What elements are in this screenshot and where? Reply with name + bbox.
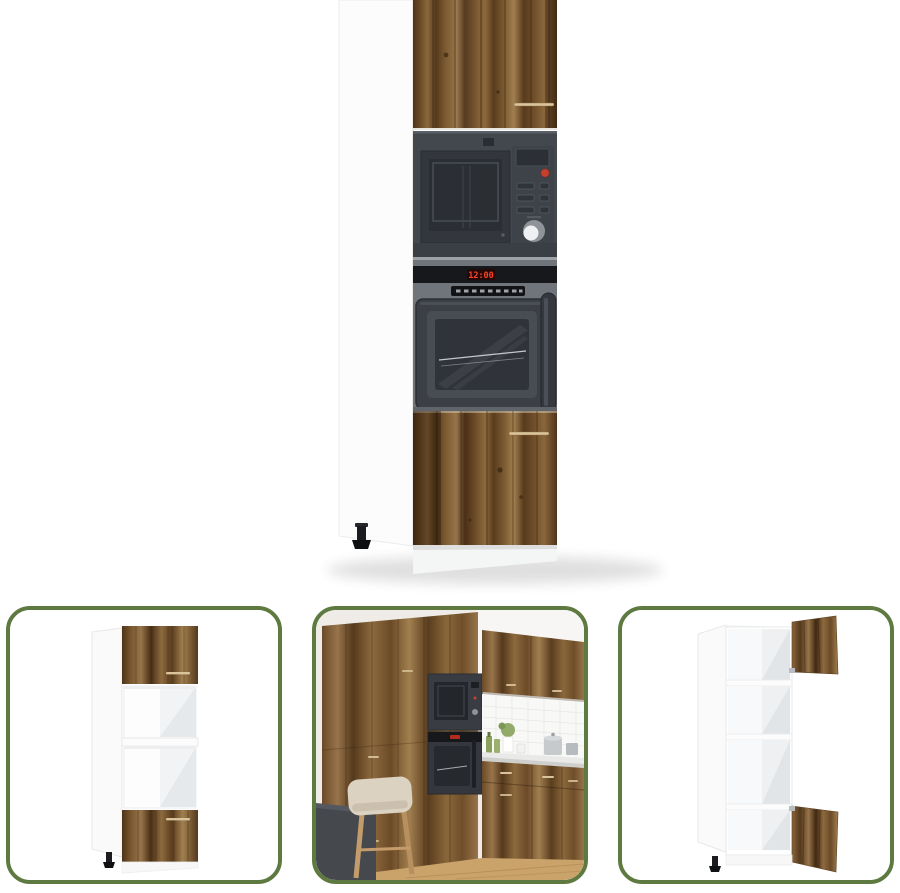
oven-handle xyxy=(541,293,556,411)
thumb1-lower-niche xyxy=(124,746,196,808)
main-cabinet-illustration: 12:00 xyxy=(0,0,900,600)
main-product-image: 12:00 xyxy=(0,0,900,600)
oven-clock-text: 12:00 xyxy=(468,271,494,281)
thumbnail-cabinet-angled[interactable] xyxy=(6,606,282,884)
thumb2-oven xyxy=(428,732,482,794)
thumb1-side-panel xyxy=(92,628,122,857)
thumb1-top-door xyxy=(122,626,198,684)
thumb3-side-panel xyxy=(698,625,726,852)
microwave-display xyxy=(516,149,549,166)
cabinet-side-panel xyxy=(339,0,413,546)
thumb2-illustration xyxy=(316,610,584,880)
thumb3-open-top-door xyxy=(789,616,838,674)
thumb2-microwave xyxy=(428,674,482,730)
built-in-microwave xyxy=(413,131,557,257)
top-door-handle xyxy=(514,103,554,106)
thumbnail-gallery xyxy=(6,606,894,886)
product-image-composite: 12:00 xyxy=(0,0,900,893)
built-in-oven: 12:00 xyxy=(413,257,557,411)
microwave-buttons xyxy=(517,183,549,213)
bottom-door-handle xyxy=(509,432,549,435)
thumb1-shelf xyxy=(122,738,198,746)
thumb3-open-bottom-door xyxy=(789,806,838,872)
thumb1-illustration xyxy=(10,610,278,880)
thumb1-bottom-door xyxy=(122,810,198,862)
thumb1-upper-niche xyxy=(124,686,196,738)
cabinet-top-door xyxy=(413,0,557,130)
thumb3-interior xyxy=(726,629,792,850)
thumb3-plinth xyxy=(726,855,792,865)
thumb3-illustration xyxy=(622,610,890,880)
microwave-control-panel xyxy=(512,146,554,250)
thumb2-upper-cabinets xyxy=(482,630,584,704)
thumbnail-kitchen-scene[interactable] xyxy=(312,606,588,884)
thumbnail-cabinet-open[interactable] xyxy=(618,606,894,884)
microwave-logo xyxy=(483,138,494,146)
microwave-stop-button xyxy=(541,169,549,177)
cabinet-bottom-door xyxy=(413,411,557,545)
thumb2-base-cabinets xyxy=(482,761,584,862)
